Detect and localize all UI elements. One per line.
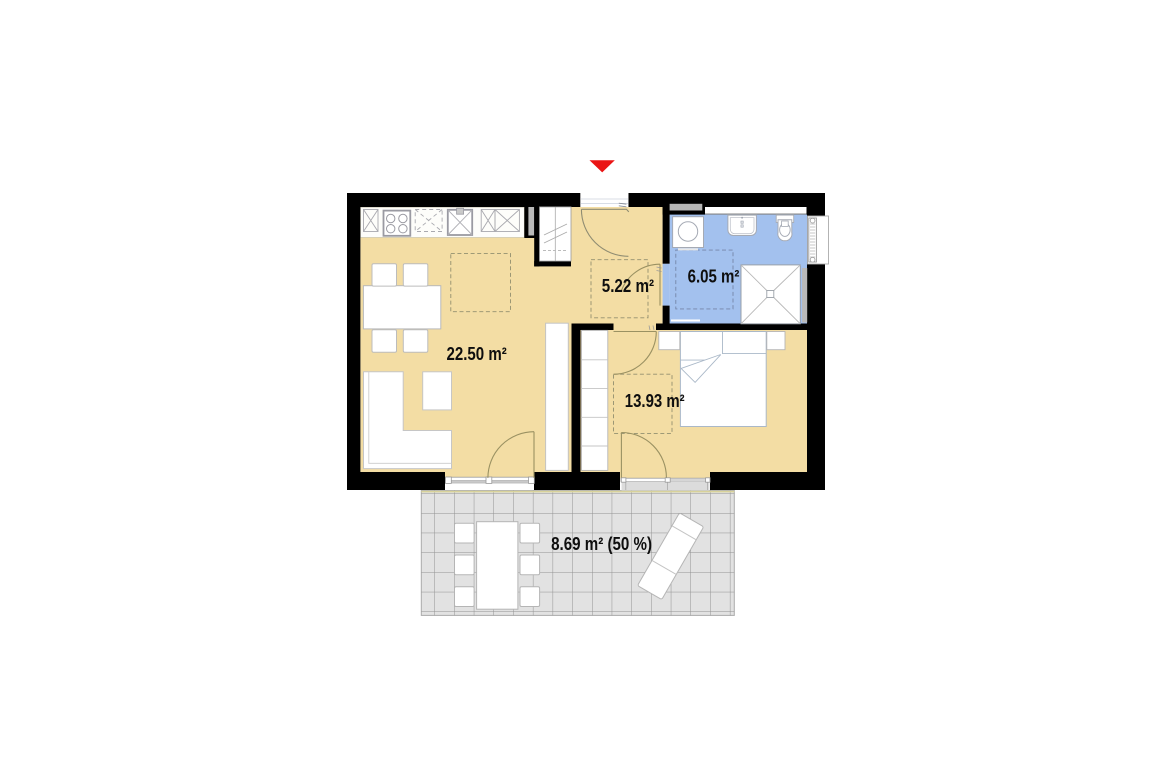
svg-text:5.22 m²: 5.22 m² — [602, 276, 654, 296]
svg-text:6.05 m²: 6.05 m² — [688, 267, 740, 287]
svg-text:13.93 m²: 13.93 m² — [625, 391, 685, 411]
svg-text:22.50 m²: 22.50 m² — [446, 344, 506, 364]
svg-text:8.69 m² (50 %): 8.69 m² (50 %) — [551, 534, 652, 554]
